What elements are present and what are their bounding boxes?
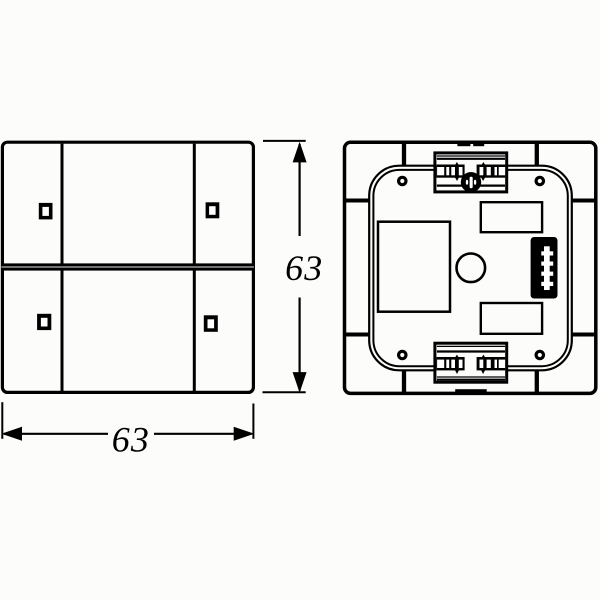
svg-text:63: 63 bbox=[112, 420, 150, 460]
svg-text:63: 63 bbox=[285, 248, 323, 288]
